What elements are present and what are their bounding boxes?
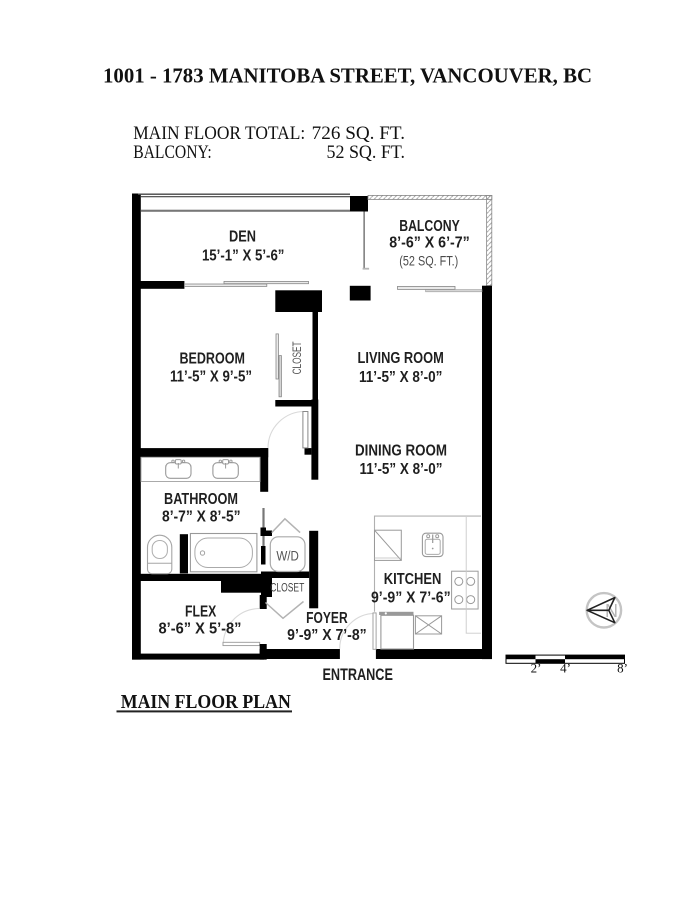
svg-text:MAIN FLOOR PLAN: MAIN FLOOR PLAN — [121, 691, 291, 713]
svg-text:ENTRANCE: ENTRANCE — [322, 665, 393, 684]
svg-text:W/D: W/D — [276, 549, 299, 564]
svg-text:8’-6” X 6’-7”: 8’-6” X 6’-7” — [389, 234, 470, 251]
svg-text:FLEX: FLEX — [185, 603, 217, 620]
svg-text:15’-1” X 5’-6”: 15’-1” X 5’-6” — [202, 247, 285, 264]
svg-text:11’-5” X 9’-5”: 11’-5” X 9’-5” — [170, 369, 252, 386]
svg-text:2’: 2’ — [531, 661, 542, 676]
svg-text:LIVING ROOM: LIVING ROOM — [358, 350, 444, 367]
svg-text:BEDROOM: BEDROOM — [179, 350, 245, 367]
svg-text:8’-6” X 5’-8”: 8’-6” X 5’-8” — [159, 621, 242, 638]
svg-text:52 SQ. FT.: 52 SQ. FT. — [327, 142, 406, 163]
svg-text:DINING ROOM: DINING ROOM — [355, 443, 447, 460]
svg-text:11’-5” X 8’-0”: 11’-5” X 8’-0” — [360, 461, 443, 478]
svg-text:DEN: DEN — [229, 229, 256, 246]
svg-text:1001 - 1783 MANITOBA STREET, V: 1001 - 1783 MANITOBA STREET, VANCOUVER, … — [103, 64, 592, 88]
svg-text:FOYER: FOYER — [306, 610, 348, 627]
svg-text:11’-5” X 8’-0”: 11’-5” X 8’-0” — [359, 369, 442, 386]
svg-text:9’-9” X 7’-6”: 9’-9” X 7’-6” — [371, 590, 451, 607]
svg-text:4’: 4’ — [560, 661, 571, 676]
svg-text:9’-9” X 7’-8”: 9’-9” X 7’-8” — [287, 627, 367, 644]
svg-text:BATHROOM: BATHROOM — [164, 491, 238, 508]
svg-text:8’: 8’ — [617, 661, 628, 676]
svg-text:KITCHEN: KITCHEN — [384, 571, 442, 588]
svg-text:CLOSET: CLOSET — [270, 581, 304, 595]
svg-text:BALCONY: BALCONY — [399, 218, 460, 235]
svg-text:CLOSET: CLOSET — [290, 341, 304, 374]
svg-text:726 SQ. FT.: 726 SQ. FT. — [312, 123, 405, 144]
svg-text:8’-7” X 8’-5”: 8’-7” X 8’-5” — [162, 509, 241, 526]
svg-text:(52 SQ. FT.): (52 SQ. FT.) — [399, 254, 458, 270]
svg-text:BALCONY:: BALCONY: — [133, 142, 212, 163]
svg-text:MAIN FLOOR TOTAL:: MAIN FLOOR TOTAL: — [133, 123, 305, 144]
